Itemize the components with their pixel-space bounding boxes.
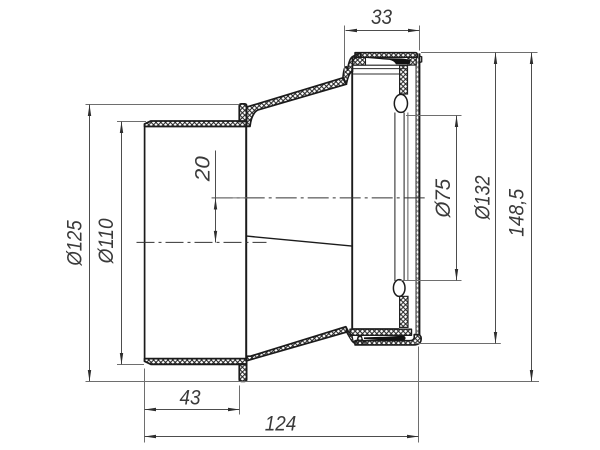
svg-text:148,5: 148,5	[506, 188, 529, 237]
svg-text:Ø75: Ø75	[432, 179, 456, 219]
svg-text:20: 20	[190, 155, 214, 182]
svg-text:Ø110: Ø110	[95, 218, 118, 265]
svg-text:33: 33	[371, 6, 393, 29]
svg-text:Ø125: Ø125	[63, 220, 87, 267]
svg-text:43: 43	[179, 386, 201, 409]
svg-text:124: 124	[265, 412, 297, 435]
svg-text:Ø132: Ø132	[471, 175, 495, 220]
